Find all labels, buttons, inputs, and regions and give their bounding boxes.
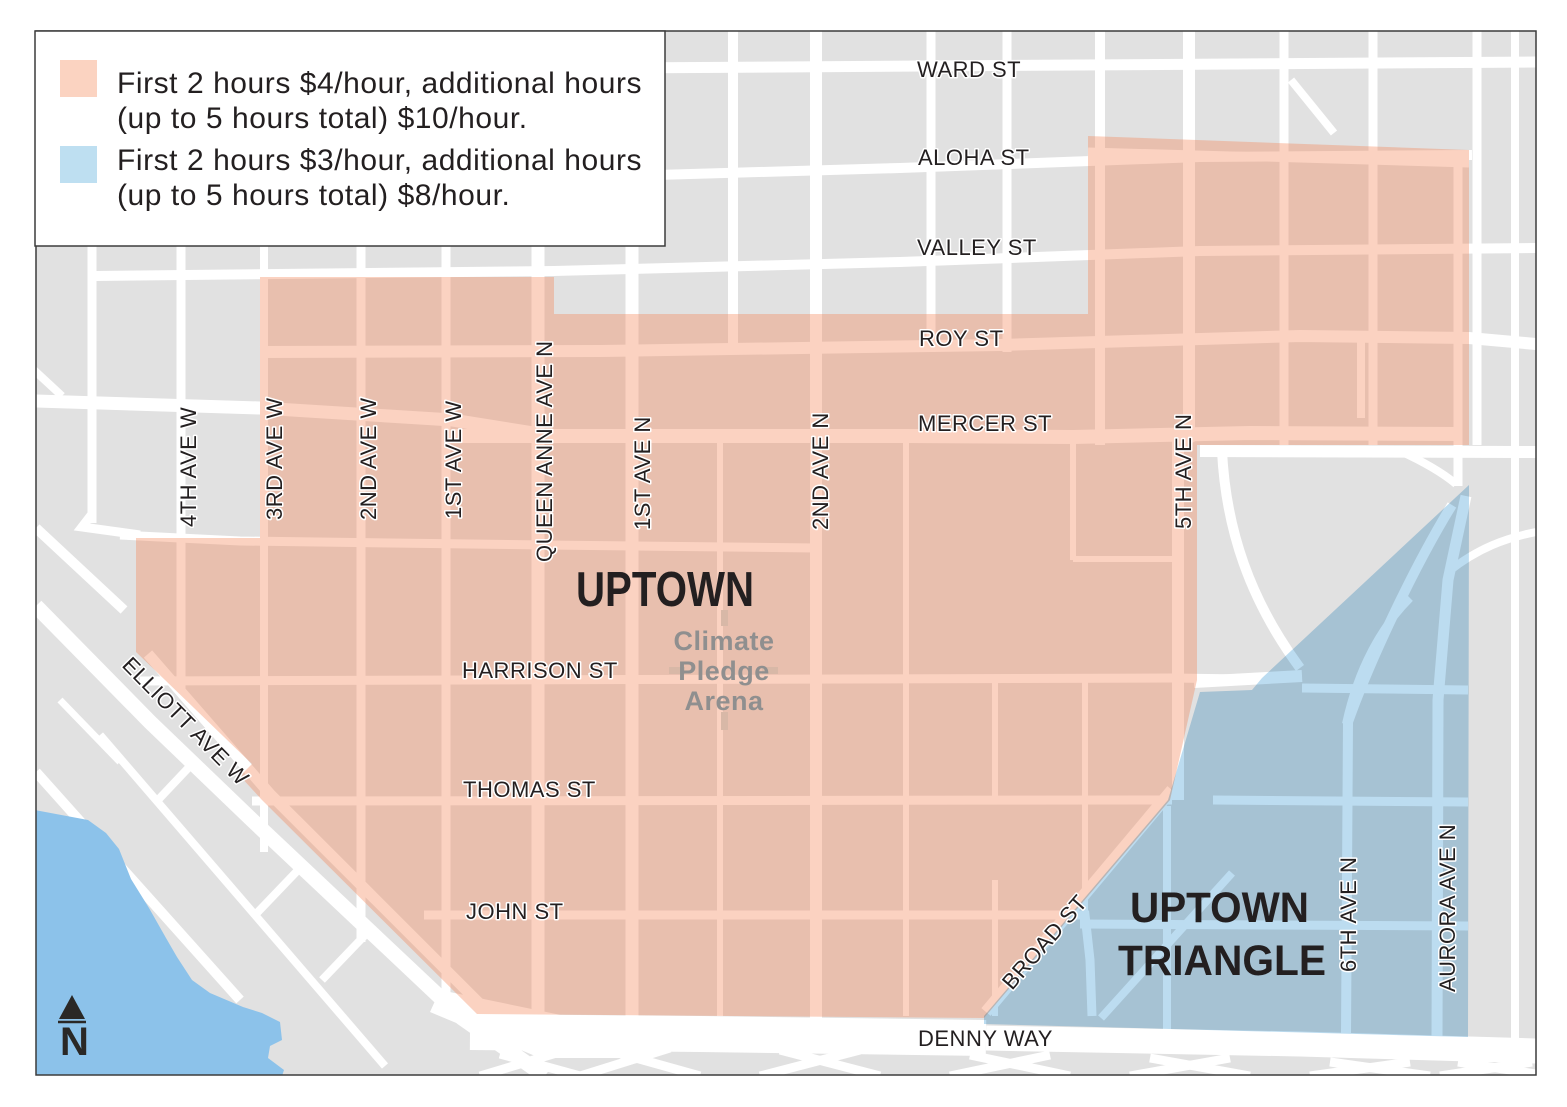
- svg-text:5TH AVE N: 5TH AVE N: [1171, 414, 1196, 529]
- svg-text:Climate: Climate: [673, 626, 774, 656]
- svg-text:TRIANGLE: TRIANGLE: [1118, 937, 1326, 985]
- svg-text:2ND AVE W: 2ND AVE W: [356, 397, 381, 520]
- svg-text:VALLEY ST: VALLEY ST: [917, 235, 1037, 260]
- svg-text:Arena: Arena: [684, 686, 764, 716]
- svg-text:6TH AVE N: 6TH AVE N: [1336, 857, 1361, 972]
- svg-text:AURORA AVE N: AURORA AVE N: [1435, 824, 1460, 992]
- svg-text:UPTOWN: UPTOWN: [576, 563, 754, 617]
- svg-text:1ST AVE N: 1ST AVE N: [630, 416, 655, 530]
- svg-text:HARRISON ST: HARRISON ST: [462, 658, 618, 683]
- svg-text:UPTOWN: UPTOWN: [1130, 884, 1309, 932]
- svg-text:ALOHA ST: ALOHA ST: [918, 145, 1030, 170]
- svg-text:First 2 hours $3/hour, additio: First 2 hours $3/hour, additional hours: [117, 144, 642, 177]
- svg-text:N: N: [60, 1020, 89, 1064]
- svg-text:Pledge: Pledge: [678, 656, 770, 686]
- svg-text:4TH AVE W: 4TH AVE W: [176, 407, 201, 527]
- svg-text:(up to 5 hours total) $10/hour: (up to 5 hours total) $10/hour.: [117, 102, 528, 135]
- svg-text:First 2 hours $4/hour, additio: First 2 hours $4/hour, additional hours: [117, 67, 642, 100]
- svg-text:3RD AVE W: 3RD AVE W: [262, 397, 287, 520]
- svg-text:2ND AVE N: 2ND AVE N: [808, 412, 833, 530]
- svg-text:MERCER ST: MERCER ST: [918, 411, 1052, 436]
- svg-text:WARD ST: WARD ST: [917, 57, 1021, 82]
- svg-text:ROY ST: ROY ST: [919, 326, 1004, 351]
- svg-text:QUEEN ANNE AVE N: QUEEN ANNE AVE N: [532, 340, 557, 562]
- svg-text:JOHN ST: JOHN ST: [466, 899, 564, 924]
- svg-text:THOMAS ST: THOMAS ST: [463, 777, 596, 802]
- svg-text:DENNY WAY: DENNY WAY: [918, 1026, 1053, 1051]
- svg-text:(up to 5 hours total) $8/hour.: (up to 5 hours total) $8/hour.: [117, 179, 510, 212]
- svg-text:1ST AVE W: 1ST AVE W: [441, 400, 466, 519]
